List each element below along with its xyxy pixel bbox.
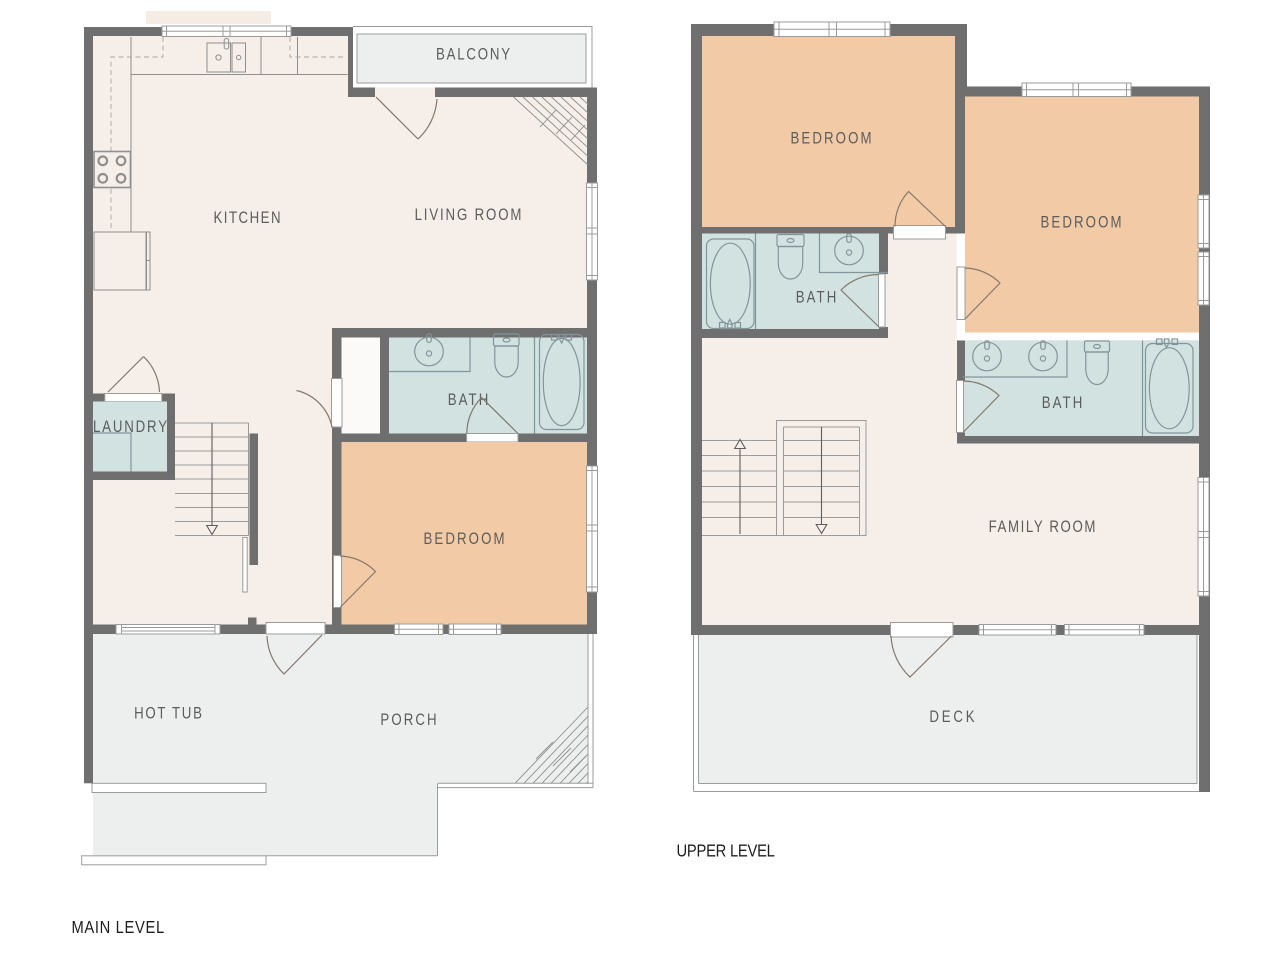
svg-text:BATH: BATH [1042, 394, 1083, 413]
svg-text:FAMILY ROOM: FAMILY ROOM [989, 518, 1096, 537]
svg-text:BALCONY: BALCONY [436, 45, 510, 64]
svg-text:UPPER LEVEL: UPPER LEVEL [677, 841, 775, 861]
svg-text:LAUNDRY: LAUNDRY [93, 418, 167, 437]
svg-text:BATH: BATH [796, 288, 837, 307]
svg-text:KITCHEN: KITCHEN [213, 209, 280, 228]
svg-text:PORCH: PORCH [380, 711, 436, 730]
svg-text:BATH: BATH [448, 391, 489, 410]
svg-text:MAIN LEVEL: MAIN LEVEL [72, 918, 165, 938]
